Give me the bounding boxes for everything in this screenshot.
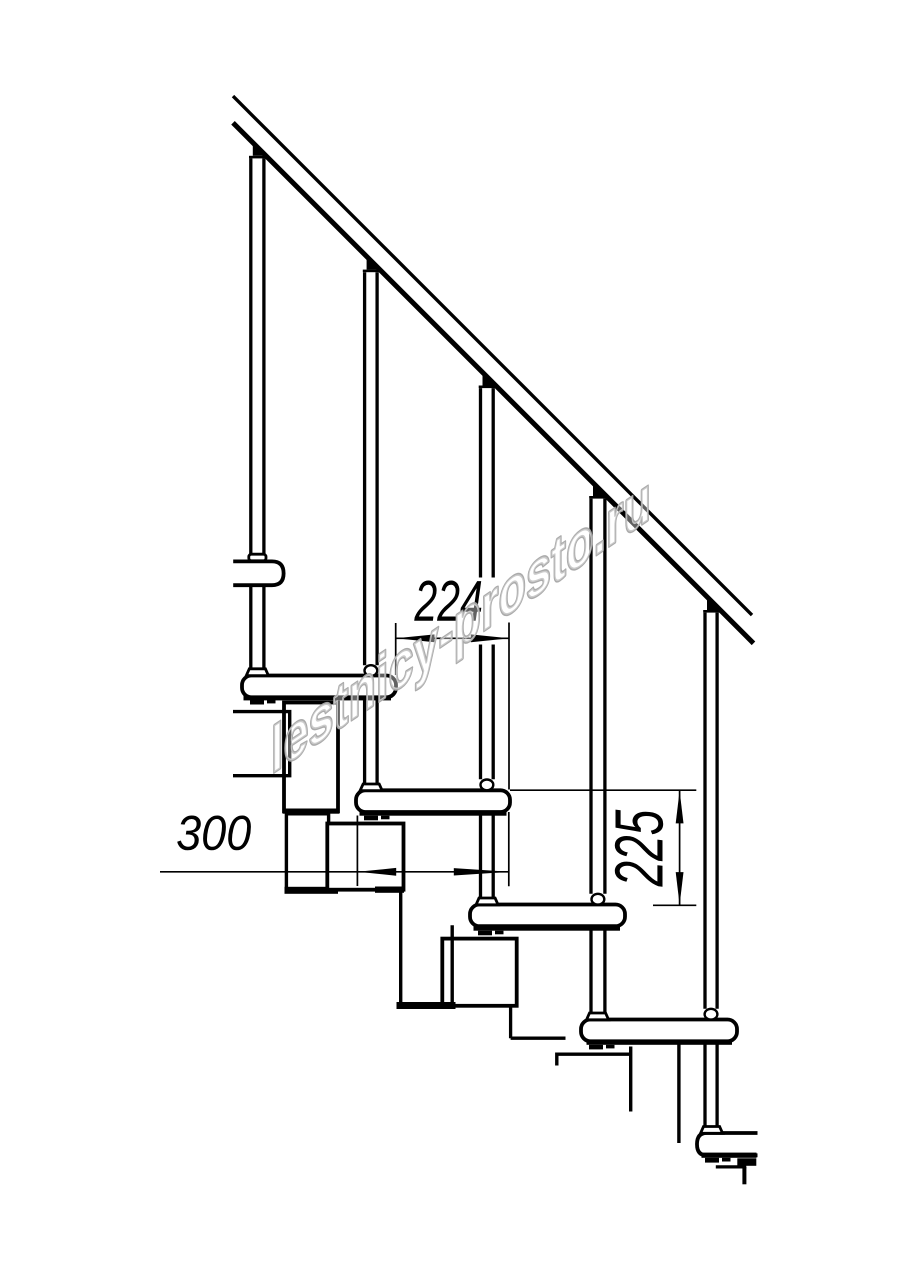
- svg-text:lestnicy-prosto.ru: lestnicy-prosto.ru: [271, 460, 651, 789]
